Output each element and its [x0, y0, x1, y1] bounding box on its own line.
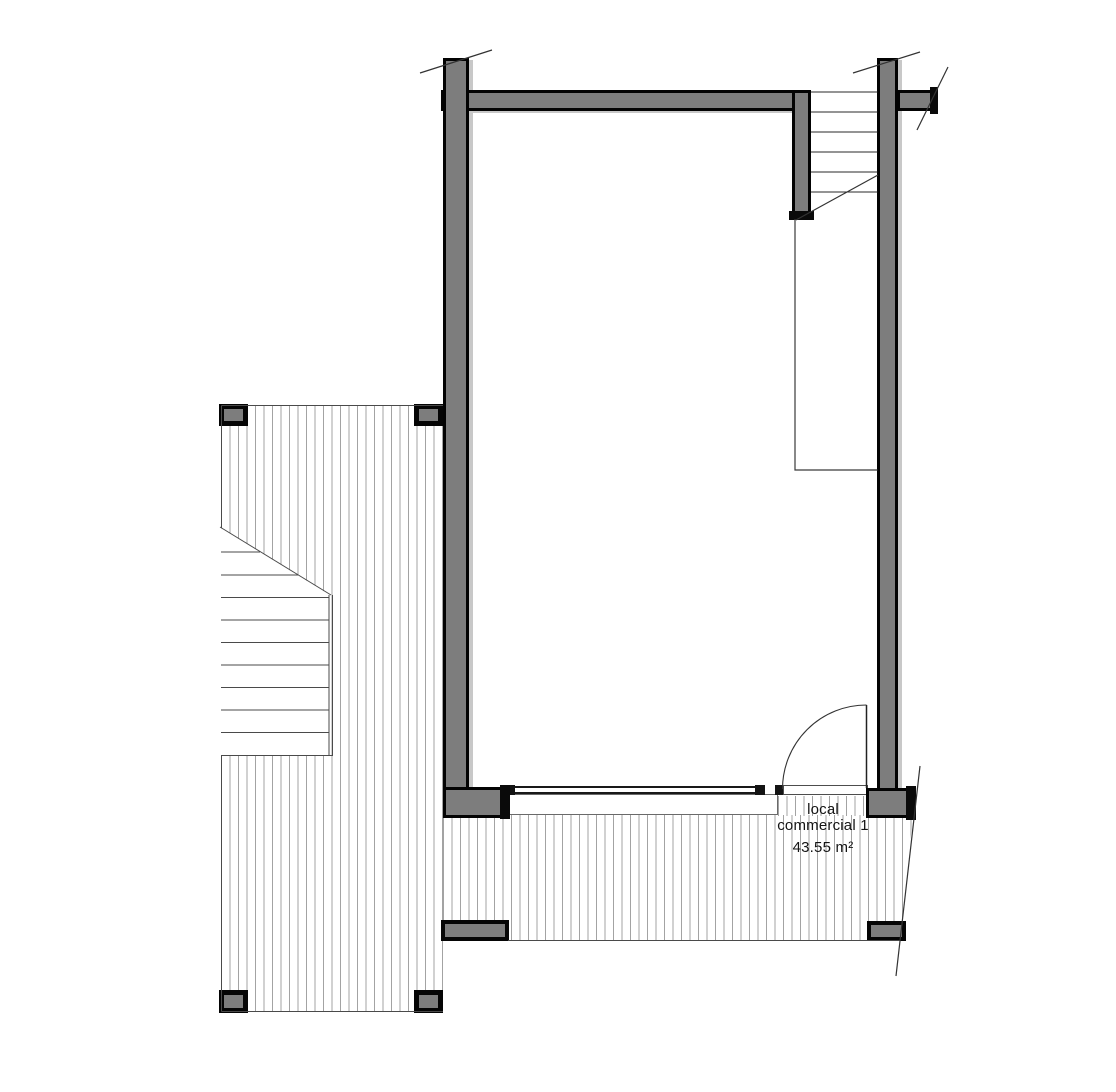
stairwell-void-outline — [795, 219, 878, 470]
plan-linework — [0, 0, 1116, 1092]
wall-break-slashes — [420, 50, 948, 976]
exterior-stair-lower — [220, 527, 333, 756]
entrance-door — [783, 705, 867, 789]
interior-stair-upper — [811, 92, 878, 192]
stair-break-line — [796, 175, 878, 220]
door-swing-arc — [783, 705, 867, 789]
floor-plan: local commercial 1 43.55 m² — [0, 0, 1116, 1092]
